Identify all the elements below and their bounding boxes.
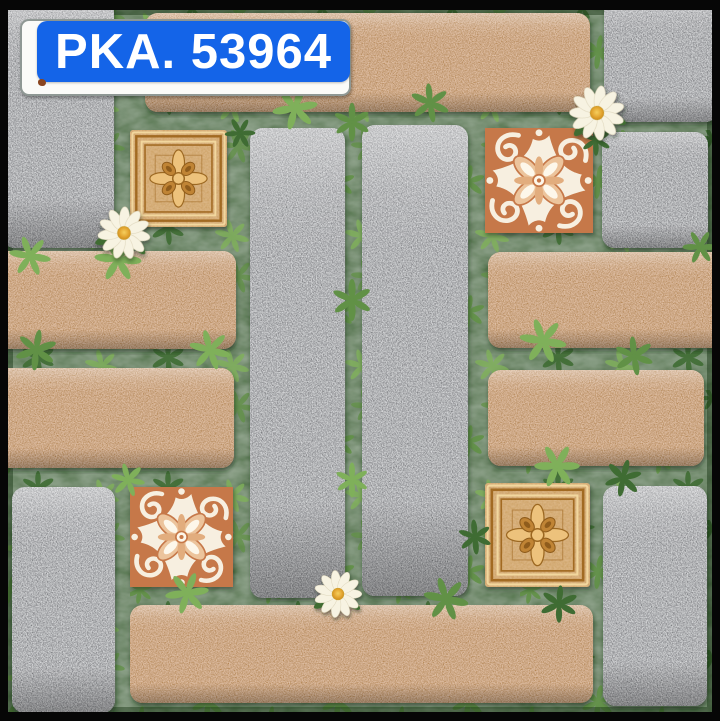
tile-artwork [0,0,720,721]
granite-paver [602,132,708,248]
granite-paver [250,128,345,598]
granite-paver [12,487,115,713]
granite-paver [603,486,707,706]
product-code-text: PKA. 53964 [55,24,332,80]
brick-paver [130,605,593,703]
ceramic-ornament-inset [130,487,233,587]
ceramic-ornament-inset [485,128,593,233]
granite-paver [362,125,468,596]
carved-wood-inset [485,483,590,587]
label-corner-speck [38,79,46,86]
brick-paver [488,252,720,348]
carved-wood-inset [130,130,227,227]
brick-paver [0,368,234,468]
brick-paver [488,370,704,466]
label-plate: PKA. 53964 [37,21,350,82]
